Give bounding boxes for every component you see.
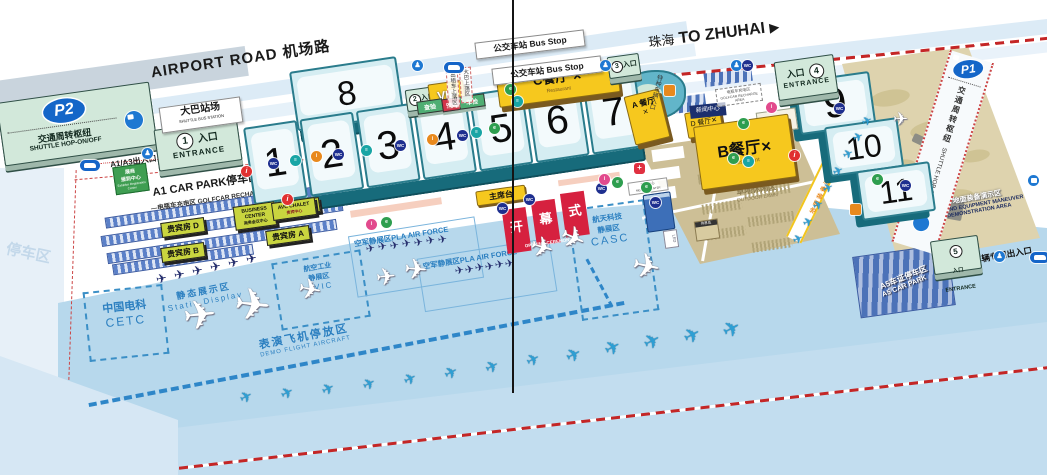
recharge-icon: e xyxy=(641,182,652,193)
map-fold-seam xyxy=(512,0,514,393)
restroom-icon: WC xyxy=(457,130,468,141)
restroom-icon: WC xyxy=(395,140,406,151)
hall-7-number: 7 xyxy=(599,88,628,136)
recharge-icon: e xyxy=(738,118,749,129)
restroom-icon: WC xyxy=(900,180,911,191)
promenade-strip xyxy=(558,172,620,187)
restroom-icon: WC xyxy=(333,149,344,160)
hall-2: 2 xyxy=(299,112,364,197)
recharge-icon: e xyxy=(872,174,883,185)
marker-icon xyxy=(664,85,675,96)
service-icon: i xyxy=(766,102,777,113)
entrance-5-number: 5 xyxy=(948,244,963,259)
pedestrian-icon: ♟ xyxy=(994,251,1005,262)
aircraft-icon: ✈ xyxy=(155,271,168,286)
bus-icon xyxy=(124,110,144,130)
bus-icon xyxy=(911,213,931,233)
bus-icon xyxy=(1028,175,1039,186)
p1-badge: P1 xyxy=(952,58,984,80)
restroom-icon: WC xyxy=(524,194,535,205)
car-icon xyxy=(1030,252,1047,263)
taxi-dropoff-label: 出租车上落区 xyxy=(446,70,461,109)
entrance-3-cn: 入口 xyxy=(622,60,637,69)
escalator-icon: ≡ xyxy=(361,145,372,156)
aircraft-icon: ✈ xyxy=(401,238,412,250)
entrance-1-cn: 入口 xyxy=(197,131,218,145)
service-icon: i xyxy=(599,174,610,185)
restroom-icon: WC xyxy=(650,197,661,208)
entrance-3-badge: 3入口 xyxy=(607,53,642,79)
aircraft-icon: ✈ xyxy=(296,274,324,306)
aircraft-icon: ✈ xyxy=(375,265,398,291)
entrance-5-building: 5 入口 ENTRANCE xyxy=(930,235,982,275)
aircraft-icon: ✈ xyxy=(425,235,436,247)
pedestrian-icon: ♟ xyxy=(600,60,611,71)
aircraft-icon: ✈ xyxy=(403,255,428,285)
recharge-icon: e xyxy=(612,177,623,188)
aircraft-icon: ✈ xyxy=(413,237,424,249)
aircraft-icon: ✈ xyxy=(227,255,240,270)
vip-chalet-d: 贵宾房 D xyxy=(160,217,206,238)
to-zhuhai-cn: 珠海 xyxy=(648,32,676,50)
restroom-icon: WC xyxy=(742,60,753,71)
restroom-icon: WC xyxy=(497,203,508,214)
aircraft-icon: ✈ xyxy=(484,261,495,273)
recharge-icon: e xyxy=(381,217,392,228)
entrance-4-cn: 入口 xyxy=(786,67,805,79)
led-screen: LED xyxy=(663,229,679,249)
recharge-icon: e xyxy=(728,153,739,164)
first-aid-icon: + xyxy=(634,163,645,174)
p1-shuttle-cn: 交通周转枢纽 xyxy=(940,85,968,146)
aircraft-icon: ✈ xyxy=(232,282,273,330)
rest-hut: 休息处 xyxy=(694,218,721,241)
car-icon xyxy=(80,160,100,171)
escalator-icon: ≡ xyxy=(743,156,754,167)
hall-11-number: 11 xyxy=(877,170,915,211)
info-icon: i xyxy=(311,151,322,162)
aircraft-icon: ✈ xyxy=(209,259,222,274)
hall-6-number: 6 xyxy=(543,97,572,145)
opening-char-3: 式 xyxy=(567,199,583,220)
hall-8-number: 8 xyxy=(335,73,359,114)
car-icon xyxy=(444,62,464,73)
aircraft-icon: ✈ xyxy=(173,267,186,282)
arrow-right-icon: ▶ xyxy=(768,19,780,35)
entrance-5-en: ENTRANCE xyxy=(945,284,976,294)
aircraft-icon: ✈ xyxy=(377,241,388,253)
to-zhuhai-label: 珠海 TO ZHUHAI ▶ xyxy=(647,16,780,52)
cetc-zone: 中国电科 CETC xyxy=(83,284,170,362)
recharge-icon: e xyxy=(505,84,516,95)
aircraft-icon: ✈ xyxy=(181,294,219,337)
escalator-icon: ≡ xyxy=(290,155,301,166)
pedestrian-icon: ♟ xyxy=(412,60,423,71)
aircraft-icon: ✈ xyxy=(389,240,400,252)
rest-hut-tag: 休息处 xyxy=(695,220,717,228)
entrance-1-en: ENTRANCE xyxy=(158,142,240,162)
recharge-icon: e xyxy=(489,123,500,134)
aircraft-icon: ✈ xyxy=(893,110,908,128)
pedestrian-icon: ♟ xyxy=(731,60,742,71)
restroom-icon: WC xyxy=(834,103,845,114)
info-icon: i xyxy=(789,150,800,161)
opening-char-2: 幕 xyxy=(538,207,554,228)
p2-badge: P2 xyxy=(42,96,87,126)
escalator-icon: ≡ xyxy=(471,127,482,138)
aircraft-icon: ✈ xyxy=(437,234,448,246)
aircraft-icon: ✈ xyxy=(365,243,376,255)
fork-knife-icon: ✕ xyxy=(760,138,773,154)
to-zhuhai-en: TO ZHUHAI xyxy=(678,20,766,47)
info-icon: i xyxy=(427,134,438,145)
pedestrian-icon: ♟ xyxy=(142,148,153,159)
hall-11: 11 xyxy=(856,161,936,221)
aircraft-icon: ✈ xyxy=(191,263,204,278)
info-icon: i xyxy=(282,194,293,205)
aircraft-icon: ✈ xyxy=(245,251,258,266)
service-icon: i xyxy=(366,219,377,230)
entrance-5-cn: 入口 xyxy=(952,267,964,274)
info-icon: i xyxy=(241,166,252,177)
zhuhai-airshow-venue-map: 停车区 AIRPORT ROAD 机场路 珠海 TO ZHUHAI ▶ 公交车站… xyxy=(0,0,1047,475)
restroom-icon: WC xyxy=(268,158,279,169)
entrance-4-building: 入口 4 ENTRANCE xyxy=(774,54,839,101)
marker-icon xyxy=(850,204,861,215)
aircraft-icon: ✈ xyxy=(464,264,475,276)
